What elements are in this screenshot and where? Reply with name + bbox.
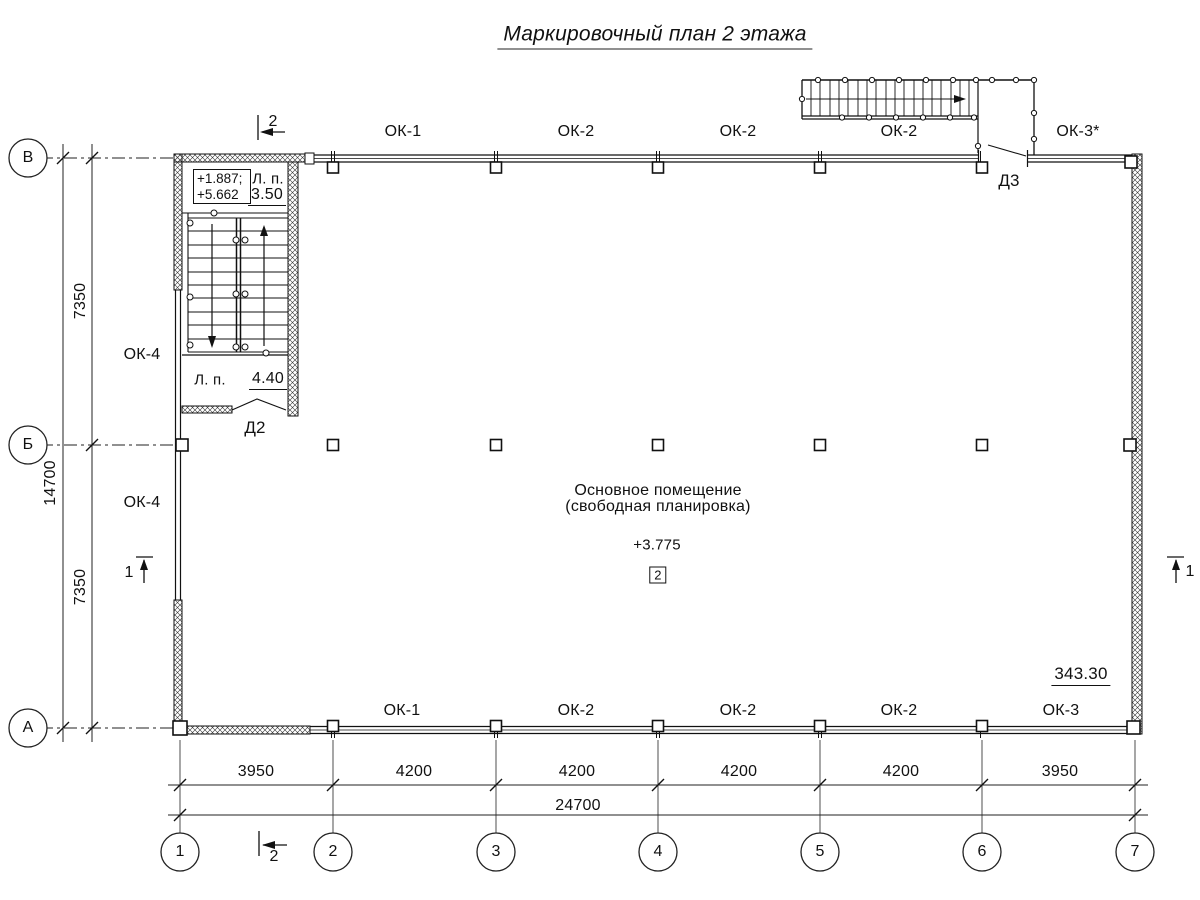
axis-col-6: 6 (977, 843, 986, 861)
window-label-top-ok3: ОК-3* (1056, 123, 1099, 141)
dim-left-1: 7350 (72, 283, 90, 319)
axis-col-3: 3 (491, 843, 500, 861)
columns (173, 156, 1140, 735)
window-label-bottom-ok2b: ОК-2 (720, 702, 757, 720)
axis-col-5: 5 (815, 843, 824, 861)
room-number-box: 2 (649, 567, 666, 584)
door-label-d3: Д3 (998, 171, 1019, 191)
dim-bottom-6: 3950 (1042, 763, 1078, 781)
room-elevation: +3.775 (633, 537, 681, 554)
window-label-bottom-ok2c: ОК-2 (881, 702, 918, 720)
external-staircase (802, 80, 1034, 155)
section-mark-left-label: 1 (124, 564, 133, 582)
window-label-left-ok4b: ОК-4 (124, 494, 161, 512)
section-mark-right-label: 1 (1185, 563, 1194, 581)
external-stair-posts (799, 77, 1036, 148)
door-d2 (232, 399, 286, 410)
axis-lines (40, 158, 176, 728)
window-label-top-ok2a: ОК-2 (558, 123, 595, 141)
window-label-bottom-ok2a: ОК-2 (558, 702, 595, 720)
left-dimension-lines (63, 144, 92, 742)
axis-row-v: В (23, 149, 34, 167)
window-label-bottom-ok1: ОК-1 (384, 702, 421, 720)
stair-levels-box: +1.887; +5.662 (193, 169, 251, 204)
axis-col-7: 7 (1130, 843, 1139, 861)
stair-level-2: +5.662 (197, 187, 250, 203)
stair-landing-label-upper: Л. п. (252, 171, 283, 188)
bottom-witness-lines (180, 740, 1135, 833)
interior-staircase (182, 213, 288, 355)
section-mark-bottom-label: 2 (269, 848, 278, 866)
window-label-top-ok1: ОК-1 (385, 123, 422, 141)
room-name-line2: (свободная планировка) (565, 498, 750, 516)
dim-bottom-total: 24700 (555, 797, 601, 815)
dim-bottom-2: 4200 (396, 763, 432, 781)
plan-linework (0, 0, 1200, 900)
area-total-value: 343.30 (1051, 664, 1110, 686)
drawing-title: Маркировочный план 2 этажа (497, 23, 812, 50)
axis-col-4: 4 (653, 843, 662, 861)
dim-bottom-3: 4200 (559, 763, 595, 781)
dim-bottom-5: 4200 (883, 763, 919, 781)
floor-plan-drawing: Маркировочный план 2 этажа ОК-1 ОК-2 ОК-… (0, 0, 1200, 900)
stair-direction-arrowheads (208, 225, 268, 348)
stair-level-1: +1.887; (197, 171, 250, 187)
window-label-left-ok4a: ОК-4 (124, 346, 161, 364)
window-label-top-ok2c: ОК-2 (881, 123, 918, 141)
axis-col-1: 1 (175, 843, 184, 861)
dim-left-total: 14700 (42, 460, 60, 506)
stair-area-lower: 4.40 (249, 370, 287, 390)
window-label-top-ok2b: ОК-2 (720, 123, 757, 141)
dim-left-2: 7350 (72, 569, 90, 605)
door-label-d2: Д2 (244, 418, 265, 438)
axis-row-b: Б (23, 436, 34, 454)
axis-row-a: А (23, 719, 34, 737)
dim-bottom-1: 3950 (238, 763, 274, 781)
stair-area-upper: 3.50 (248, 186, 286, 206)
stair-rail-posts (187, 210, 269, 356)
axis-col-2: 2 (328, 843, 337, 861)
dim-bottom-4: 4200 (721, 763, 757, 781)
door-d3 (988, 145, 1026, 156)
window-label-bottom-ok3: ОК-3 (1043, 702, 1080, 720)
section-mark-top-label: 2 (268, 113, 277, 131)
stair-landing-label-lower: Л. п. (194, 372, 225, 389)
